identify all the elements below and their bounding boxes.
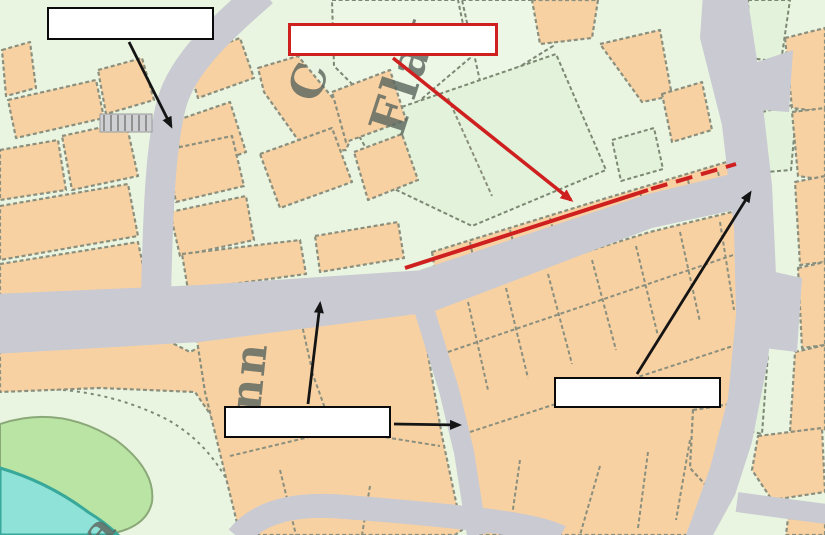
road <box>764 270 802 352</box>
building <box>792 108 825 180</box>
building <box>2 42 36 96</box>
building <box>798 262 825 348</box>
answer-box-bottom-center[interactable] <box>224 406 391 438</box>
answer-box-right[interactable] <box>554 377 721 408</box>
road <box>737 502 825 514</box>
building <box>790 345 825 432</box>
answer-box-top-left[interactable] <box>47 7 214 40</box>
inn-name-fragment: nn <box>220 338 278 413</box>
building <box>532 0 598 44</box>
building <box>0 140 66 200</box>
steps <box>100 114 152 132</box>
answer-box-top-center[interactable] <box>288 23 498 56</box>
base-map: C Flat nn a <box>0 0 825 535</box>
annotated-map-canvas: C Flat nn a <box>0 0 825 535</box>
arrow-from-bottom-box-right <box>394 424 459 425</box>
building <box>795 176 825 265</box>
